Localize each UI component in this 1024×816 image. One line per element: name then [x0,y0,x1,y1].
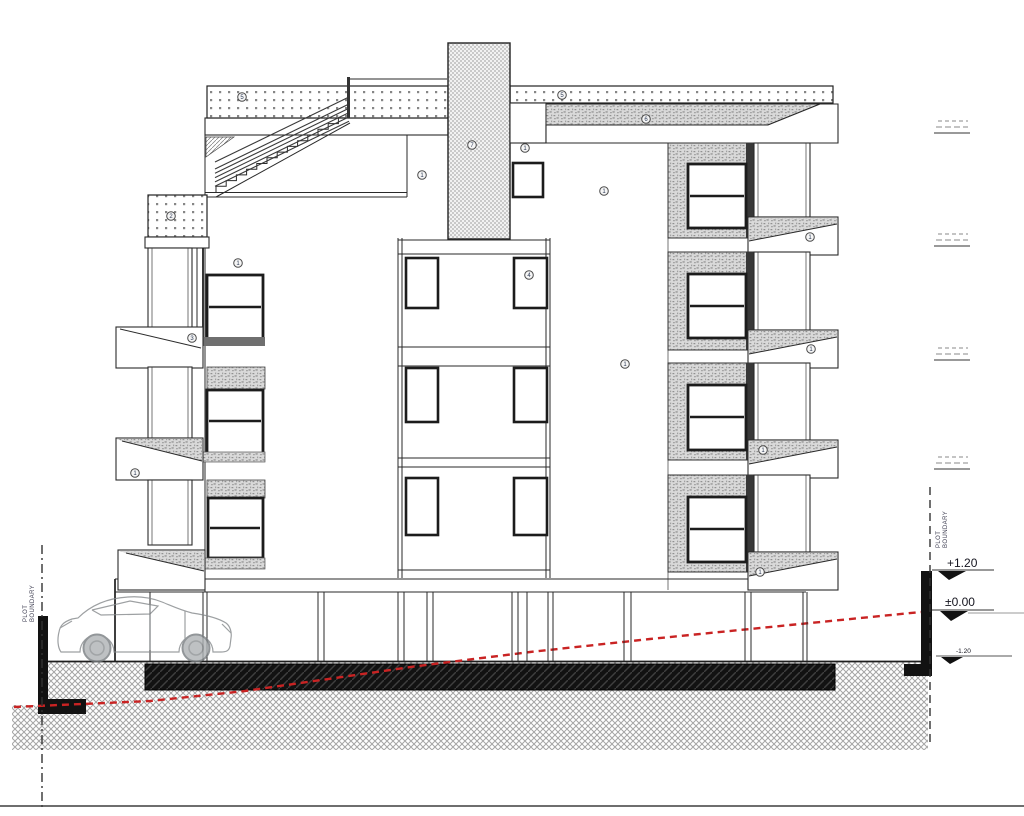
floor-datum-ticks [934,121,970,469]
datum-tick [934,121,970,133]
elevation-drawing: PLOT BOUNDARY PLOT BOUNDARY +1.20 ±0.00 … [0,0,1024,816]
ground-floor [58,579,807,662]
foundation-slab [145,664,835,690]
datum-tick [934,234,970,246]
balustrade [148,480,192,545]
left-wing [116,195,265,590]
stair-landing-hatch [206,137,234,157]
window [514,478,547,535]
window [514,258,547,308]
balustrade [754,252,810,330]
window [406,368,438,422]
balustrade [754,143,810,217]
parapet-left [207,86,448,118]
stucco-band [207,480,265,498]
window-sill [204,558,265,569]
stucco-band [207,367,265,389]
level-label-plus: +1.20 [947,556,978,570]
right-wing [668,143,838,590]
car-window [92,601,158,615]
stair-rail-post [347,77,350,118]
level-symbol [938,571,966,580]
car-door-lines [150,604,185,650]
balustrade [754,363,810,440]
parapet-block-left [148,195,207,237]
level-symbol [940,611,968,621]
plot-boundary-label: BOUNDARY [943,511,949,548]
level-symbol [941,657,963,664]
level-markers: +1.20 ±0.00 -1.20 [932,556,1024,664]
plot-boundary-label: PLOT [23,605,29,622]
wall-right-of-tower [510,103,546,143]
slab-band [145,237,209,248]
retaining-wall-right [904,571,932,676]
level-label-minus: -1.20 [956,648,971,655]
balcony-fascia [116,327,203,368]
car-headlight [222,624,231,633]
car-front-wheel [183,635,210,662]
window-sill [203,452,265,462]
plot-boundary-label: PLOT [936,531,942,548]
balustrade [148,367,192,438]
small-window [513,163,543,197]
window [406,258,438,308]
window [514,368,547,422]
car-rear-wheel [84,635,111,662]
balustrade [754,475,810,552]
balustrade [148,248,192,328]
parked-car [58,597,231,662]
center-bay [398,238,550,578]
window [406,478,438,535]
elevation-drawing-canvas: PLOT BOUNDARY PLOT BOUNDARY +1.20 ±0.00 … [0,0,1024,816]
level-label-zero: ±0.00 [945,595,975,609]
datum-tick [934,457,970,469]
stair-core-tower [448,43,510,239]
window-sill [203,337,265,346]
datum-tick [934,348,970,360]
plot-boundary-label: BOUNDARY [30,585,36,622]
